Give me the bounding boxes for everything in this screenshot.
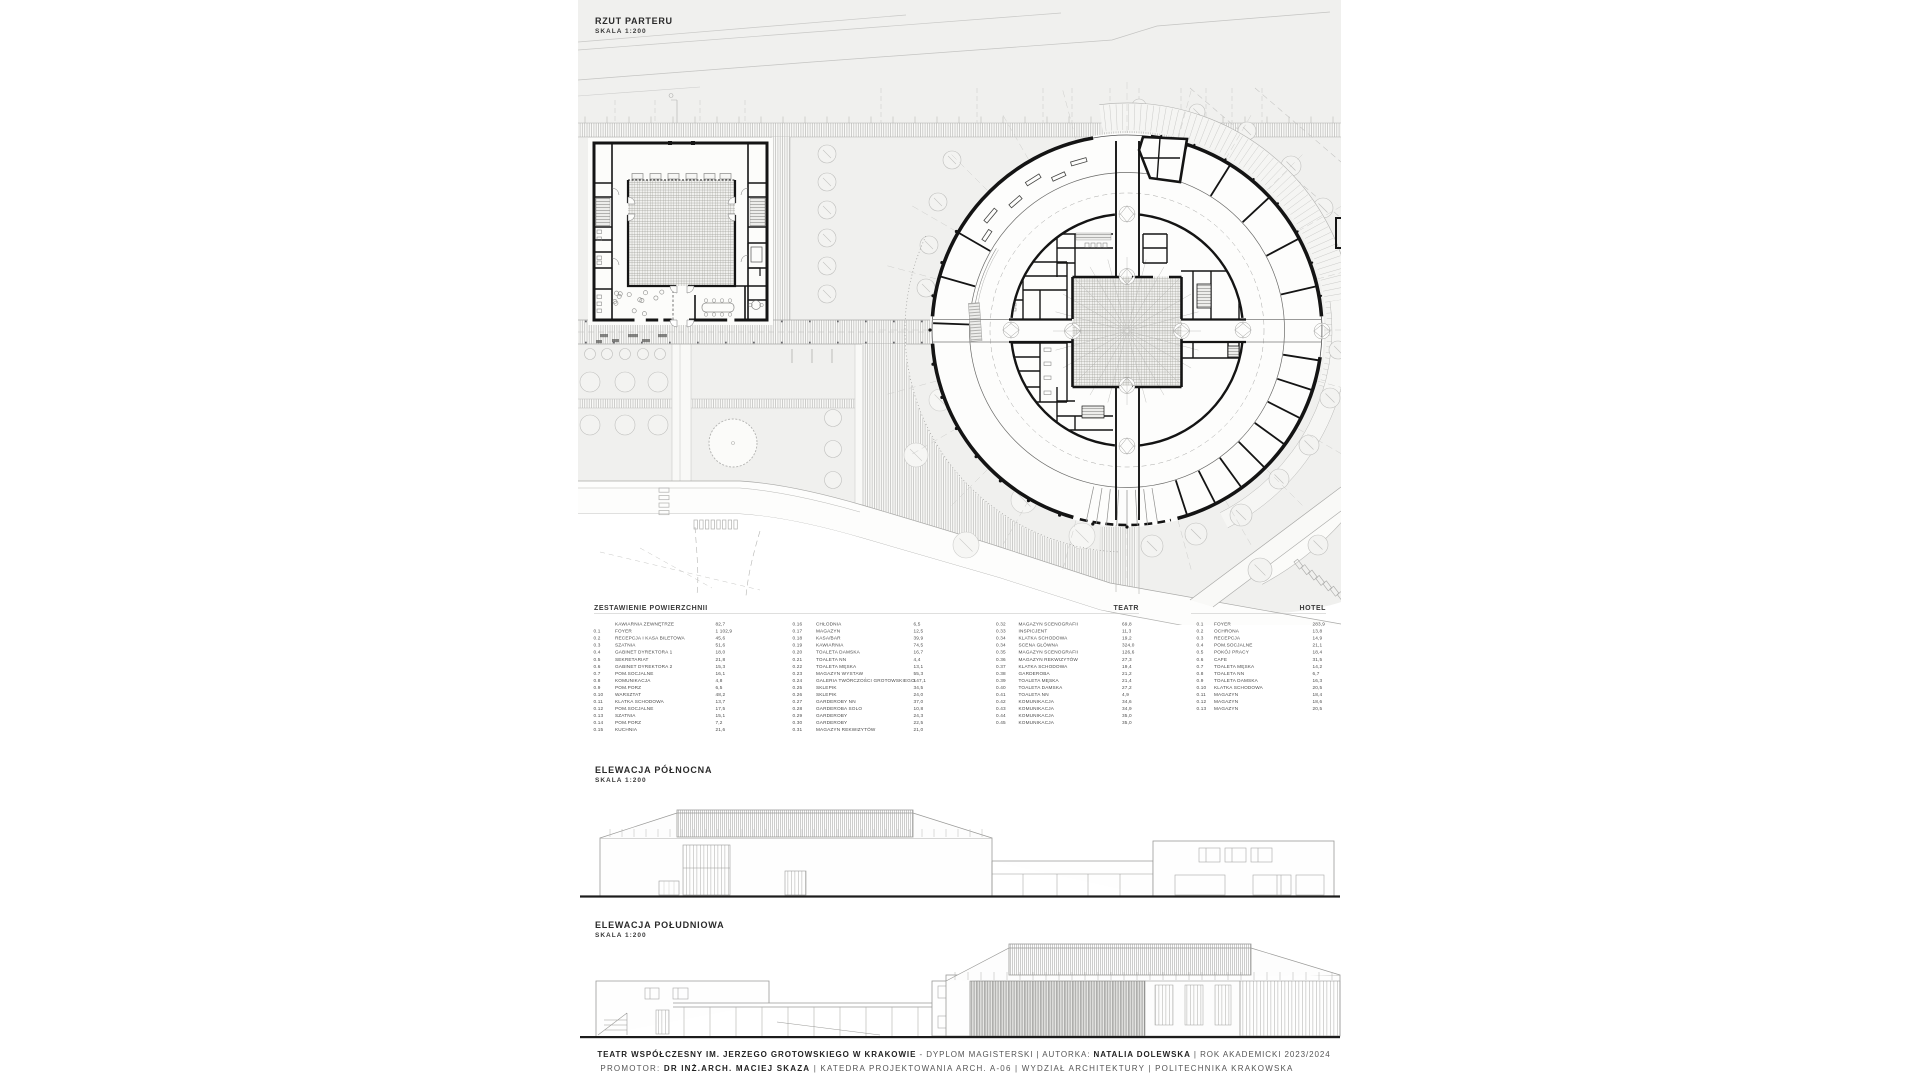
svg-text:0.29: 0.29 [793,713,803,718]
svg-text:0.9: 0.9 [594,685,601,690]
svg-text:OCHRONA: OCHRONA [1214,629,1240,634]
svg-text:SKLEPIK: SKLEPIK [816,692,837,697]
svg-text:KLATKA SCHODOWA: KLATKA SCHODOWA [1214,685,1264,690]
svg-text:0.45: 0.45 [996,720,1006,725]
svg-text:KLATKA SCHODOWA: KLATKA SCHODOWA [1019,636,1069,641]
svg-text:KASA/BAR: KASA/BAR [816,636,841,641]
svg-text:16,1: 16,1 [716,671,726,676]
svg-text:6,7: 6,7 [1313,671,1320,676]
svg-text:TOALETA MĘSKA: TOALETA MĘSKA [1214,664,1255,669]
svg-text:48,2: 48,2 [716,692,726,697]
svg-text:6,5: 6,5 [914,622,921,627]
svg-text:CAFE: CAFE [1214,657,1227,662]
svg-text:19,2: 19,2 [1122,636,1132,641]
svg-text:31,5: 31,5 [1313,657,1323,662]
svg-text:74,5: 74,5 [914,643,924,648]
svg-text:KAWIARNIA: KAWIARNIA [816,643,844,648]
svg-text:18,0: 18,0 [716,650,726,655]
svg-text:11,3: 11,3 [1122,629,1132,634]
svg-text:16,3: 16,3 [1313,678,1323,683]
svg-text:0.6: 0.6 [594,664,601,669]
svg-text:ELEWACJA PÓŁNOCNA: ELEWACJA PÓŁNOCNA [595,764,712,775]
svg-text:20,5: 20,5 [1313,685,1323,690]
svg-text:34,5: 34,5 [914,685,924,690]
svg-text:ELEWACJA POŁUDNIOWA: ELEWACJA POŁUDNIOWA [595,920,724,930]
svg-text:GARDEROBY: GARDEROBY [816,713,848,718]
svg-text:0.25: 0.25 [793,685,803,690]
svg-text:0.38: 0.38 [996,671,1006,676]
svg-text:KLATKA SCHODOWA: KLATKA SCHODOWA [615,699,665,704]
svg-text:TOALETA NN: TOALETA NN [816,657,846,662]
svg-text:0.11: 0.11 [1197,692,1207,697]
svg-text:0.1: 0.1 [594,629,601,634]
svg-text:0.20: 0.20 [793,650,803,655]
svg-text:55,3: 55,3 [914,671,924,676]
svg-text:6,5: 6,5 [716,685,723,690]
svg-text:0.15: 0.15 [594,727,604,732]
svg-text:21,6: 21,6 [716,727,726,732]
svg-text:KLATKA SCHODOWA: KLATKA SCHODOWA [1019,664,1069,669]
svg-text:0.16: 0.16 [793,622,803,627]
svg-text:35,0: 35,0 [1122,713,1132,718]
svg-text:0.19: 0.19 [793,643,803,648]
svg-text:0.23: 0.23 [793,671,803,676]
svg-text:0.44: 0.44 [996,713,1006,718]
svg-text:SZATNIA: SZATNIA [615,713,636,718]
svg-text:20,5: 20,5 [1313,706,1323,711]
svg-text:POM.PORZ: POM.PORZ [615,720,641,725]
svg-text:0.27: 0.27 [793,699,803,704]
svg-text:0.10: 0.10 [1197,685,1207,690]
svg-text:0.3: 0.3 [594,643,601,648]
svg-text:FOYER: FOYER [1214,622,1231,627]
svg-text:KOMUNIKACJA: KOMUNIKACJA [1019,720,1055,725]
svg-text:17,5: 17,5 [716,706,726,711]
svg-text:0.2: 0.2 [594,636,601,641]
svg-text:4,9: 4,9 [1122,692,1129,697]
svg-text:HOTEL: HOTEL [1300,605,1327,612]
svg-text:0.24: 0.24 [793,678,803,683]
svg-text:12,5: 12,5 [914,629,924,634]
svg-text:SKALA 1:200: SKALA 1:200 [595,777,647,784]
svg-text:CHŁODNIA: CHŁODNIA [816,622,842,627]
svg-text:24,3: 24,3 [914,713,924,718]
svg-text:GARDEROBY: GARDEROBY [816,720,848,725]
svg-text:13,1: 13,1 [914,664,924,669]
svg-text:0.34: 0.34 [996,636,1006,641]
svg-text:MAGAZYN SCENOGRAFII: MAGAZYN SCENOGRAFII [1019,622,1079,627]
svg-text:GARDEROBA: GARDEROBA [1019,671,1051,676]
svg-text:0.22: 0.22 [793,664,803,669]
svg-text:POM.SOCJALNE: POM.SOCJALNE [615,671,654,676]
svg-text:0.5: 0.5 [1197,650,1204,655]
svg-text:7,2: 7,2 [716,720,723,725]
svg-text:INSPICJENT: INSPICJENT [1019,629,1048,634]
svg-text:0.37: 0.37 [996,664,1006,669]
svg-text:15,1: 15,1 [716,713,726,718]
svg-text:MAGAZYN: MAGAZYN [1214,699,1238,704]
svg-text:0.35: 0.35 [996,650,1006,655]
svg-text:KUCHNIA: KUCHNIA [615,727,638,732]
svg-text:0.41: 0.41 [996,692,1006,697]
svg-text:MAGAZYN REKWIZYTÓW: MAGAZYN REKWIZYTÓW [816,726,876,732]
svg-text:ZESTAWIENIE POWIERZCHNII: ZESTAWIENIE POWIERZCHNII [594,605,708,612]
svg-text:21,0: 21,0 [914,727,924,732]
svg-text:0.18: 0.18 [793,636,803,641]
svg-text:39,9: 39,9 [914,636,924,641]
svg-text:21,2: 21,2 [1122,671,1132,676]
svg-text:KAWIARNIA ZEWNĘTRZE: KAWIARNIA ZEWNĘTRZE [615,622,674,627]
svg-text:TOALETA DAMSKA: TOALETA DAMSKA [1214,678,1259,683]
svg-text:TEATR WSPÓŁCZESNY IM. JERZEGO: TEATR WSPÓŁCZESNY IM. JERZEGO GROTOWSKIE… [597,1050,1330,1059]
svg-text:15,3: 15,3 [716,664,726,669]
svg-text:POM.SOCJALNE: POM.SOCJALNE [1214,643,1253,648]
svg-text:0.13: 0.13 [1197,706,1207,711]
svg-text:35,0: 35,0 [1122,720,1132,725]
svg-text:24,0: 24,0 [914,692,924,697]
svg-text:0.14: 0.14 [594,720,604,725]
svg-text:27,3: 27,3 [1122,657,1132,662]
svg-text:19,4: 19,4 [1122,664,1132,669]
svg-text:283,9: 283,9 [1313,622,1326,627]
svg-text:MAGAZYN: MAGAZYN [1214,692,1238,697]
svg-text:18,4: 18,4 [1313,692,1323,697]
svg-text:0.4: 0.4 [1197,643,1204,648]
svg-text:13,8: 13,8 [1313,629,1323,634]
svg-text:POKÓJ PRACY: POKÓJ PRACY [1214,649,1250,655]
svg-text:45,6: 45,6 [716,636,726,641]
svg-text:13,7: 13,7 [716,699,726,704]
svg-text:TOALETA NN: TOALETA NN [1214,671,1244,676]
svg-text:18,6: 18,6 [1313,699,1323,704]
svg-text:GARDEROBA SOLO: GARDEROBA SOLO [816,706,862,711]
svg-text:SZATNIA: SZATNIA [615,643,636,648]
svg-text:0.40: 0.40 [996,685,1006,690]
svg-text:TOALETA MĘSKA: TOALETA MĘSKA [816,664,857,669]
svg-text:1 102,9: 1 102,9 [716,629,733,634]
svg-text:TOALETA DAMSKA: TOALETA DAMSKA [816,650,861,655]
svg-text:0.21: 0.21 [793,657,803,662]
svg-text:0.30: 0.30 [793,720,803,725]
svg-text:0.12: 0.12 [594,706,604,711]
svg-text:0.42: 0.42 [996,699,1006,704]
svg-text:4,4: 4,4 [914,657,921,662]
svg-text:16,7: 16,7 [914,650,924,655]
svg-text:21,1: 21,1 [1313,643,1323,648]
svg-text:0.33: 0.33 [996,629,1006,634]
svg-text:0.31: 0.31 [793,727,803,732]
svg-text:0.4: 0.4 [594,650,601,655]
svg-text:69,8: 69,8 [1122,622,1132,627]
svg-text:POM.SOCJALNE: POM.SOCJALNE [615,706,654,711]
svg-text:18,4: 18,4 [1313,650,1323,655]
svg-text:MAGAZYN SCENOGRAFII: MAGAZYN SCENOGRAFII [1019,650,1079,655]
svg-text:MAGAZYN WYSTAW: MAGAZYN WYSTAW [816,671,864,676]
svg-text:RECEPCJA: RECEPCJA [1214,636,1241,641]
svg-text:POM.PORZ: POM.PORZ [615,685,641,690]
svg-text:0.43: 0.43 [996,706,1006,711]
svg-text:TOALETA NN: TOALETA NN [1019,692,1049,697]
svg-text:0.26: 0.26 [793,692,803,697]
svg-text:SKLEPIK: SKLEPIK [816,685,837,690]
svg-text:0.9: 0.9 [1197,678,1204,683]
svg-text:21,8: 21,8 [716,657,726,662]
svg-text:0.11: 0.11 [594,699,604,704]
svg-text:0.36: 0.36 [996,657,1006,662]
svg-text:KOMUNIKACJA: KOMUNIKACJA [615,678,651,683]
svg-text:KOMUNIKACJA: KOMUNIKACJA [1019,706,1055,711]
svg-text:GABINET DYREKTORA 1: GABINET DYREKTORA 1 [615,650,673,655]
svg-text:4,8: 4,8 [716,678,723,683]
svg-text:0.6: 0.6 [1197,657,1204,662]
svg-text:22,5: 22,5 [914,720,924,725]
svg-text:0.3: 0.3 [1197,636,1204,641]
svg-text:27,2: 27,2 [1122,685,1132,690]
svg-text:GARDEROBY NN: GARDEROBY NN [816,699,856,704]
svg-text:21,4: 21,4 [1122,678,1132,683]
svg-text:34,6: 34,6 [1122,699,1132,704]
svg-text:SKALA 1:200: SKALA 1:200 [595,28,647,35]
svg-text:PROMOTOR: DR INŻ.ARCH. MACIEJ: PROMOTOR: DR INŻ.ARCH. MACIEJ SKAZA | KA… [600,1064,1293,1073]
svg-text:WARSZTAT: WARSZTAT [615,692,641,697]
svg-text:0.10: 0.10 [594,692,604,697]
svg-text:0.28: 0.28 [793,706,803,711]
svg-text:14,2: 14,2 [1313,664,1323,669]
svg-text:0.1: 0.1 [1197,622,1204,627]
svg-text:0.5: 0.5 [594,657,601,662]
svg-text:RZUT PARTERU: RZUT PARTERU [595,16,673,26]
svg-text:TEATR: TEATR [1113,605,1139,612]
svg-text:0.12: 0.12 [1197,699,1207,704]
svg-text:0.34: 0.34 [996,643,1006,648]
svg-text:0.8: 0.8 [594,678,601,683]
svg-text:51,6: 51,6 [716,643,726,648]
svg-text:34,9: 34,9 [1122,706,1132,711]
svg-text:0.7: 0.7 [1197,664,1204,669]
svg-text:0.2: 0.2 [1197,629,1204,634]
svg-text:10,8: 10,8 [914,706,924,711]
svg-text:0.32: 0.32 [996,622,1006,627]
svg-text:GABINET DYREKTORA 2: GABINET DYREKTORA 2 [615,664,673,669]
svg-text:324,0: 324,0 [1122,643,1135,648]
svg-text:SKALA 1:200: SKALA 1:200 [595,932,647,939]
svg-text:KOMUNIKACJA: KOMUNIKACJA [1019,699,1055,704]
svg-text:14,9: 14,9 [1313,636,1323,641]
svg-text:0.39: 0.39 [996,678,1006,683]
svg-text:KOMUNIKACJA: KOMUNIKACJA [1019,713,1055,718]
svg-text:TOALETA MĘSKA: TOALETA MĘSKA [1019,678,1060,683]
svg-text:SEKRETARIAT: SEKRETARIAT [615,657,649,662]
svg-text:0.8: 0.8 [1197,671,1204,676]
svg-text:MAGAZYN: MAGAZYN [816,629,840,634]
svg-text:126,6: 126,6 [1122,650,1135,655]
svg-text:MAGAZYN REKWIZYTÓW: MAGAZYN REKWIZYTÓW [1019,656,1079,662]
svg-text:TOALETA DAMSKA: TOALETA DAMSKA [1019,685,1064,690]
svg-text:RECEPCJA I KASA BILETOWA: RECEPCJA I KASA BILETOWA [615,636,685,641]
svg-text:GALERIA TWÓRCZOŚCI GROTOWSKIEG: GALERIA TWÓRCZOŚCI GROTOWSKIEGO [816,676,915,683]
svg-text:147,1: 147,1 [914,678,927,683]
svg-text:0.7: 0.7 [594,671,601,676]
svg-text:FOYER: FOYER [615,629,632,634]
svg-text:MAGAZYN: MAGAZYN [1214,706,1238,711]
svg-text:SCENA GŁÓWNA: SCENA GŁÓWNA [1019,642,1060,648]
svg-text:37,0: 37,0 [914,699,924,704]
svg-text:0.13: 0.13 [594,713,604,718]
svg-text:82,7: 82,7 [716,622,726,627]
svg-text:0.17: 0.17 [793,629,803,634]
